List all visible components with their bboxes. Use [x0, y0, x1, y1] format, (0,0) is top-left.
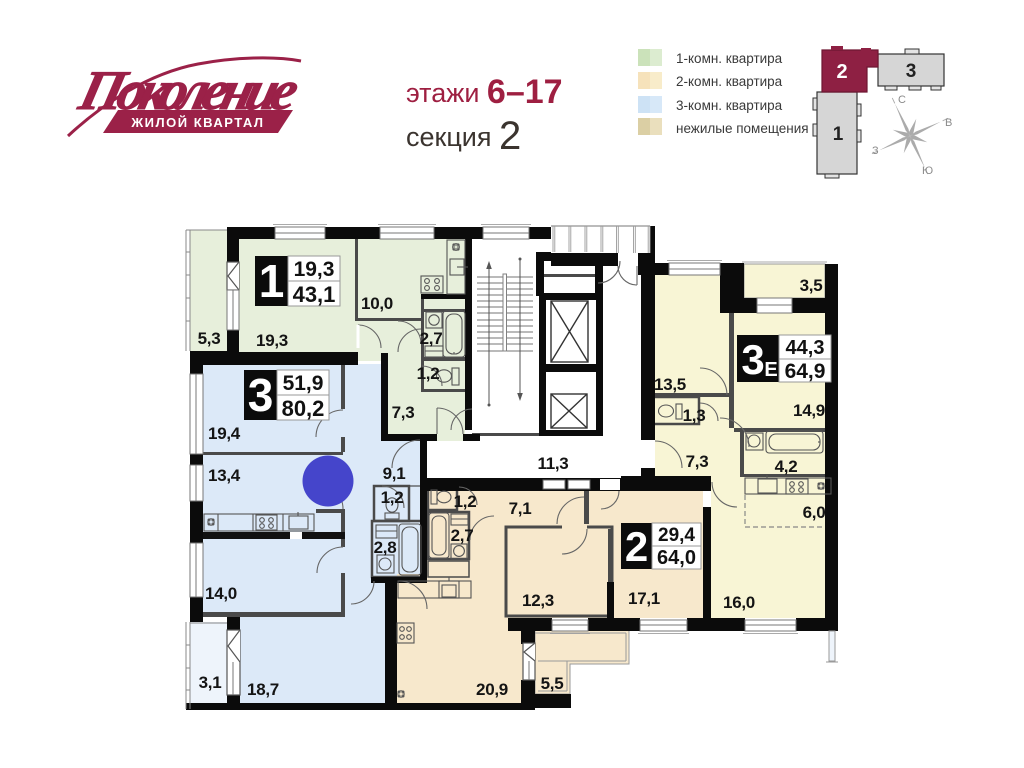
svg-text:20,9: 20,9: [476, 680, 508, 699]
svg-text:51,9: 51,9: [283, 372, 324, 395]
svg-text:7,3: 7,3: [686, 452, 709, 471]
svg-text:29,4: 29,4: [658, 525, 695, 546]
svg-text:14,0: 14,0: [205, 584, 237, 603]
svg-text:19,3: 19,3: [256, 331, 288, 350]
svg-text:12,3: 12,3: [522, 591, 554, 610]
svg-text:2,7: 2,7: [451, 526, 474, 545]
svg-text:13,4: 13,4: [208, 466, 241, 485]
svg-text:44,3: 44,3: [786, 337, 825, 359]
svg-text:64,9: 64,9: [785, 360, 826, 383]
svg-text:3,5: 3,5: [800, 276, 823, 295]
svg-text:1,2: 1,2: [417, 364, 440, 383]
svg-text:3: 3: [741, 336, 764, 383]
svg-text:2: 2: [625, 523, 648, 570]
svg-text:16,0: 16,0: [723, 593, 755, 612]
svg-text:11,3: 11,3: [538, 454, 569, 473]
svg-text:19,4: 19,4: [208, 424, 241, 443]
svg-text:19,3: 19,3: [294, 258, 335, 281]
svg-text:3: 3: [248, 369, 274, 421]
svg-text:10,0: 10,0: [361, 294, 393, 313]
svg-text:3,1: 3,1: [199, 673, 222, 692]
svg-text:2,7: 2,7: [420, 329, 443, 348]
svg-text:80,2: 80,2: [282, 396, 325, 421]
svg-text:1,2: 1,2: [454, 492, 477, 511]
svg-text:1: 1: [259, 255, 285, 307]
svg-text:Е: Е: [764, 359, 777, 381]
svg-text:5,3: 5,3: [198, 329, 221, 348]
svg-text:2,8: 2,8: [374, 538, 397, 557]
svg-text:1,2: 1,2: [381, 488, 404, 507]
svg-text:1,3: 1,3: [683, 406, 706, 425]
svg-text:5,5: 5,5: [541, 674, 564, 693]
svg-text:18,7: 18,7: [247, 680, 279, 699]
svg-text:6,0: 6,0: [803, 503, 826, 522]
svg-text:7,3: 7,3: [392, 403, 415, 422]
svg-text:4,2: 4,2: [775, 457, 798, 476]
svg-text:9,1: 9,1: [383, 464, 406, 483]
svg-text:14,9: 14,9: [793, 401, 825, 420]
svg-text:64,0: 64,0: [657, 547, 696, 569]
svg-text:17,1: 17,1: [628, 589, 660, 608]
svg-text:7,1: 7,1: [509, 499, 532, 518]
svg-text:13,5: 13,5: [654, 375, 686, 394]
svg-text:43,1: 43,1: [293, 282, 336, 307]
